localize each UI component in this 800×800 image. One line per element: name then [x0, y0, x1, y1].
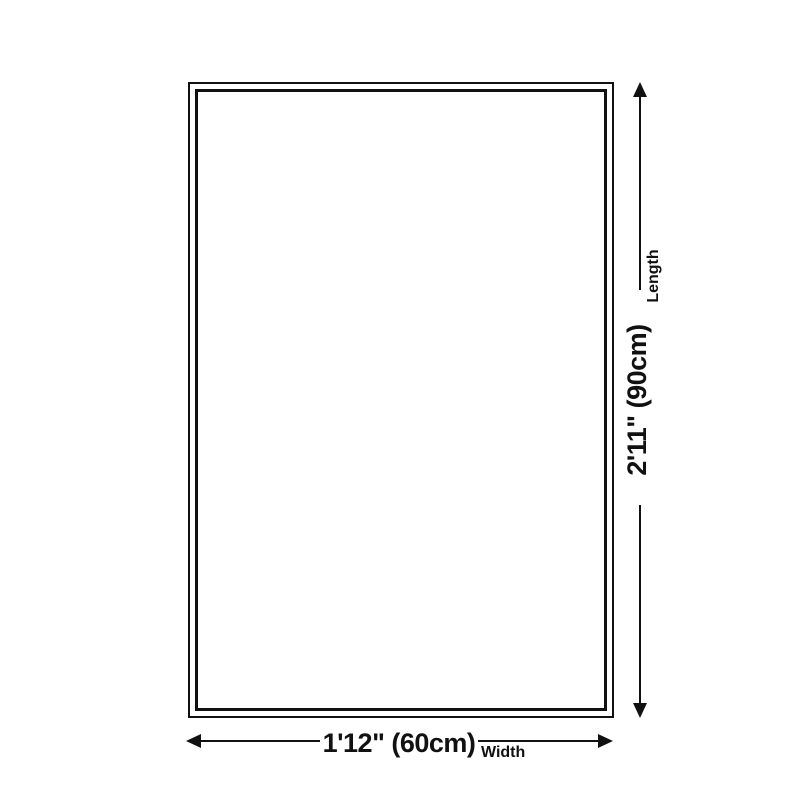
arrow-right-icon	[598, 734, 613, 748]
length-line-bottom	[639, 505, 641, 705]
width-value: 1'12" (60cm)	[318, 727, 480, 759]
length-label: Length	[646, 246, 662, 306]
width-line-left	[199, 740, 320, 742]
width-label: Width	[481, 744, 525, 762]
arrow-down-icon	[633, 703, 647, 718]
width-line-right	[478, 740, 599, 742]
product-outline	[188, 82, 614, 718]
length-value: 2'11" (90cm)	[620, 315, 654, 485]
product-inner-outline	[195, 89, 607, 711]
dimension-diagram: Length 2'11" (90cm) 1'12" (60cm) Width	[0, 0, 800, 800]
length-line-top	[639, 95, 641, 290]
